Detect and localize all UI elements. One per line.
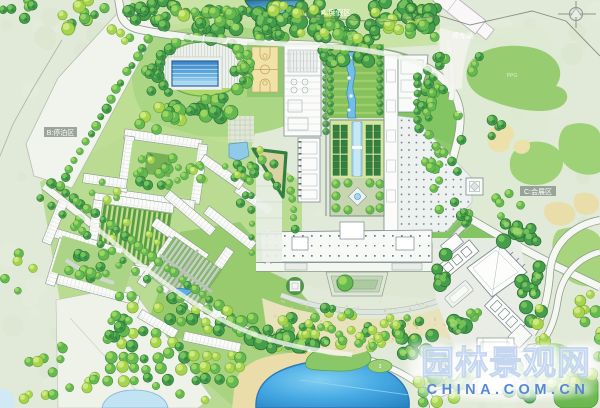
svg-text:园林景观网: 园林景观网 bbox=[421, 344, 591, 381]
svg-text:CHINA.COM.CN: CHINA.COM.CN bbox=[427, 382, 590, 398]
